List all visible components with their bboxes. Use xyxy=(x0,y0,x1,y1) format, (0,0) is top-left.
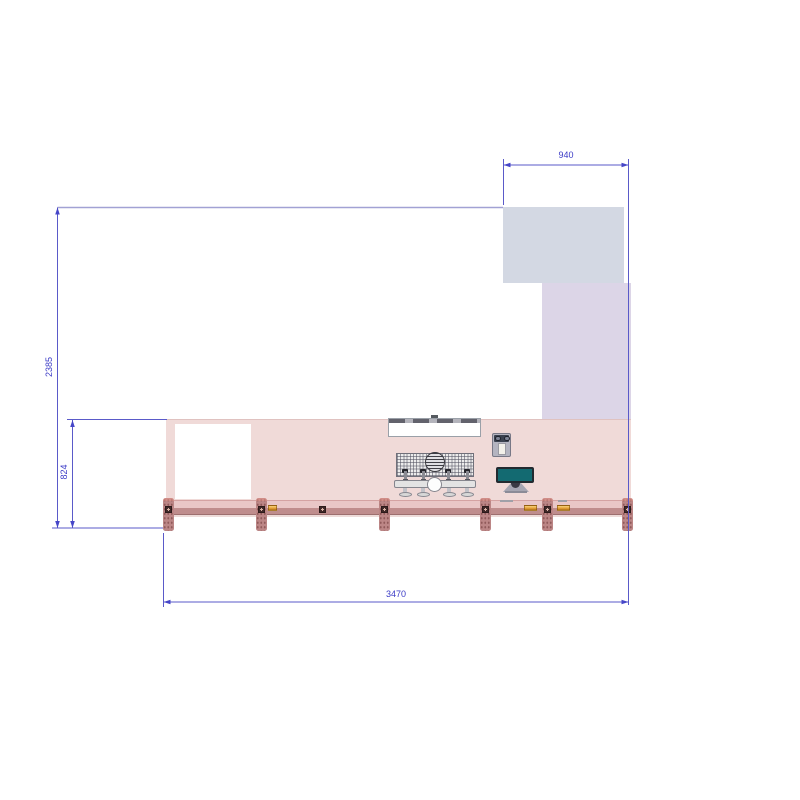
arrow-left xyxy=(164,600,171,605)
fan-vent[interactable] xyxy=(425,452,445,472)
dimension-label-counter[interactable]: 824 xyxy=(59,452,69,492)
tap-foot xyxy=(443,492,456,497)
counter-post[interactable] xyxy=(480,498,491,531)
post-bolt xyxy=(165,506,172,513)
coffee-machine-panel xyxy=(498,443,506,455)
coffee-cup xyxy=(504,436,510,442)
arrow-down xyxy=(70,521,75,528)
pos-monitor-screen[interactable] xyxy=(496,467,534,483)
dimension-label-left[interactable]: 2385 xyxy=(44,347,54,387)
dimension-label-top[interactable]: 940 xyxy=(546,150,586,160)
wall-mark xyxy=(558,500,567,502)
counter-post[interactable] xyxy=(622,498,633,531)
post-bolt xyxy=(544,506,551,513)
arrow-down xyxy=(55,521,60,528)
arrow-right xyxy=(622,600,629,605)
window-opening[interactable] xyxy=(175,424,251,499)
arrow-up xyxy=(55,208,60,215)
coffee-cup xyxy=(495,436,501,442)
rail-bolt xyxy=(319,506,326,513)
wall-shelf[interactable] xyxy=(388,418,481,437)
arrow-left xyxy=(504,163,511,168)
counter-post[interactable] xyxy=(542,498,553,531)
arrow-right xyxy=(622,163,629,168)
dimension-lines-svg xyxy=(0,0,800,800)
tap-foot xyxy=(417,492,430,497)
tap-foot xyxy=(399,492,412,497)
drawing-canvas[interactable]: 940 2385 824 3470 xyxy=(0,0,800,800)
pos-monitor-base xyxy=(505,491,527,493)
shelf-rail xyxy=(389,419,480,423)
post-bolt xyxy=(258,506,265,513)
counter-post[interactable] xyxy=(379,498,390,531)
post-bolt xyxy=(482,506,489,513)
center-pipe xyxy=(427,477,442,492)
wall-mark xyxy=(500,500,513,502)
shelf-bracket xyxy=(431,415,438,418)
dimension-label-bottom[interactable]: 3470 xyxy=(376,589,416,599)
amber-clip xyxy=(557,505,570,511)
upper-panel[interactable] xyxy=(503,207,624,283)
coffee-machine[interactable] xyxy=(492,433,511,457)
amber-clip xyxy=(524,505,537,511)
counter-post[interactable] xyxy=(256,498,267,531)
coffee-machine-top xyxy=(494,435,509,442)
side-panel[interactable] xyxy=(542,283,631,419)
post-bolt xyxy=(381,506,388,513)
post-bolt xyxy=(624,506,631,513)
counter-shadow xyxy=(163,515,632,517)
amber-clip xyxy=(268,505,277,511)
arrow-up xyxy=(70,420,75,427)
counter-post[interactable] xyxy=(163,498,174,531)
tap-foot xyxy=(461,492,474,497)
dimension-824 xyxy=(67,420,167,529)
